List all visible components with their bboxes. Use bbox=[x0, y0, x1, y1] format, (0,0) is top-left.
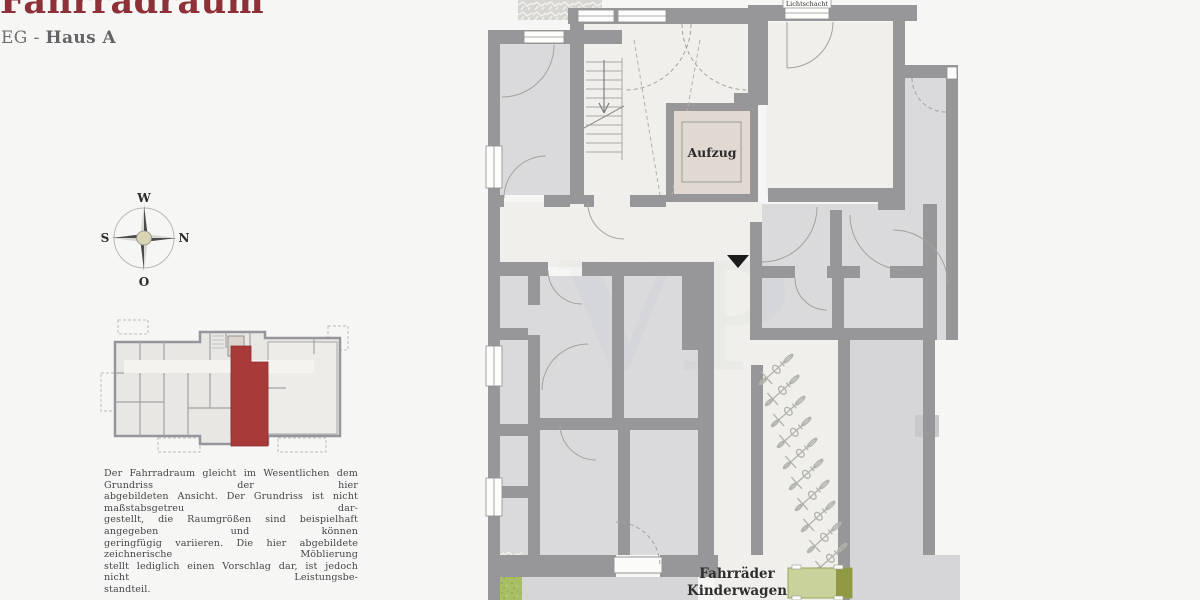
compass-label-west: W bbox=[136, 192, 151, 205]
compass-label-north: N bbox=[179, 231, 190, 245]
compass-label-east: O bbox=[139, 275, 149, 289]
elevator-label: Aufzug bbox=[686, 145, 736, 160]
page-title: Fahrradraum bbox=[0, 0, 264, 19]
disclaimer-line: gestellt, die Raumgrößen sind beispielha… bbox=[104, 514, 358, 537]
door-opening bbox=[528, 305, 540, 335]
disclaimer-line: Der Fahrradraum gleicht im Wesentlichen … bbox=[104, 468, 358, 491]
compass-star bbox=[111, 205, 177, 271]
disclaimer-line: geringfügig variieren. Die hier abgebild… bbox=[104, 538, 358, 561]
elevator: Aufzug bbox=[674, 111, 750, 194]
bike-room-label-line2: Kinderwagen bbox=[687, 583, 787, 599]
light-shaft: Lichtschacht bbox=[783, 0, 831, 8]
disclaimer-line: abgebildeten Ansicht. Der Grundriss ist … bbox=[104, 491, 358, 514]
compass-label-south: S bbox=[101, 231, 110, 245]
compass-rose: W N O S bbox=[98, 192, 194, 292]
disclaimer-line: standteil. bbox=[104, 584, 358, 596]
subtitle-house: Haus A bbox=[46, 28, 117, 48]
light-shaft-label: Lichtschacht bbox=[786, 0, 829, 8]
subtitle-floor: EG - bbox=[1, 28, 46, 48]
disclaimer-line: stellt lediglich einen Vorschlag dar, is… bbox=[104, 561, 358, 584]
overview-footprint bbox=[101, 320, 348, 452]
furniture-green bbox=[788, 565, 852, 600]
disclaimer-text: Der Fahrradraum gleicht im Wesentlichen … bbox=[104, 468, 358, 596]
bike-room-label-line1: Fahrräder bbox=[699, 566, 775, 582]
entrance-door bbox=[614, 557, 662, 573]
page-subtitle: EG - Haus A bbox=[1, 28, 116, 48]
overview-floor-plan bbox=[100, 318, 352, 458]
main-floor-plan: VP bbox=[480, 0, 980, 600]
bike-room-label: Fahrräder Kinderwagen bbox=[687, 566, 787, 599]
